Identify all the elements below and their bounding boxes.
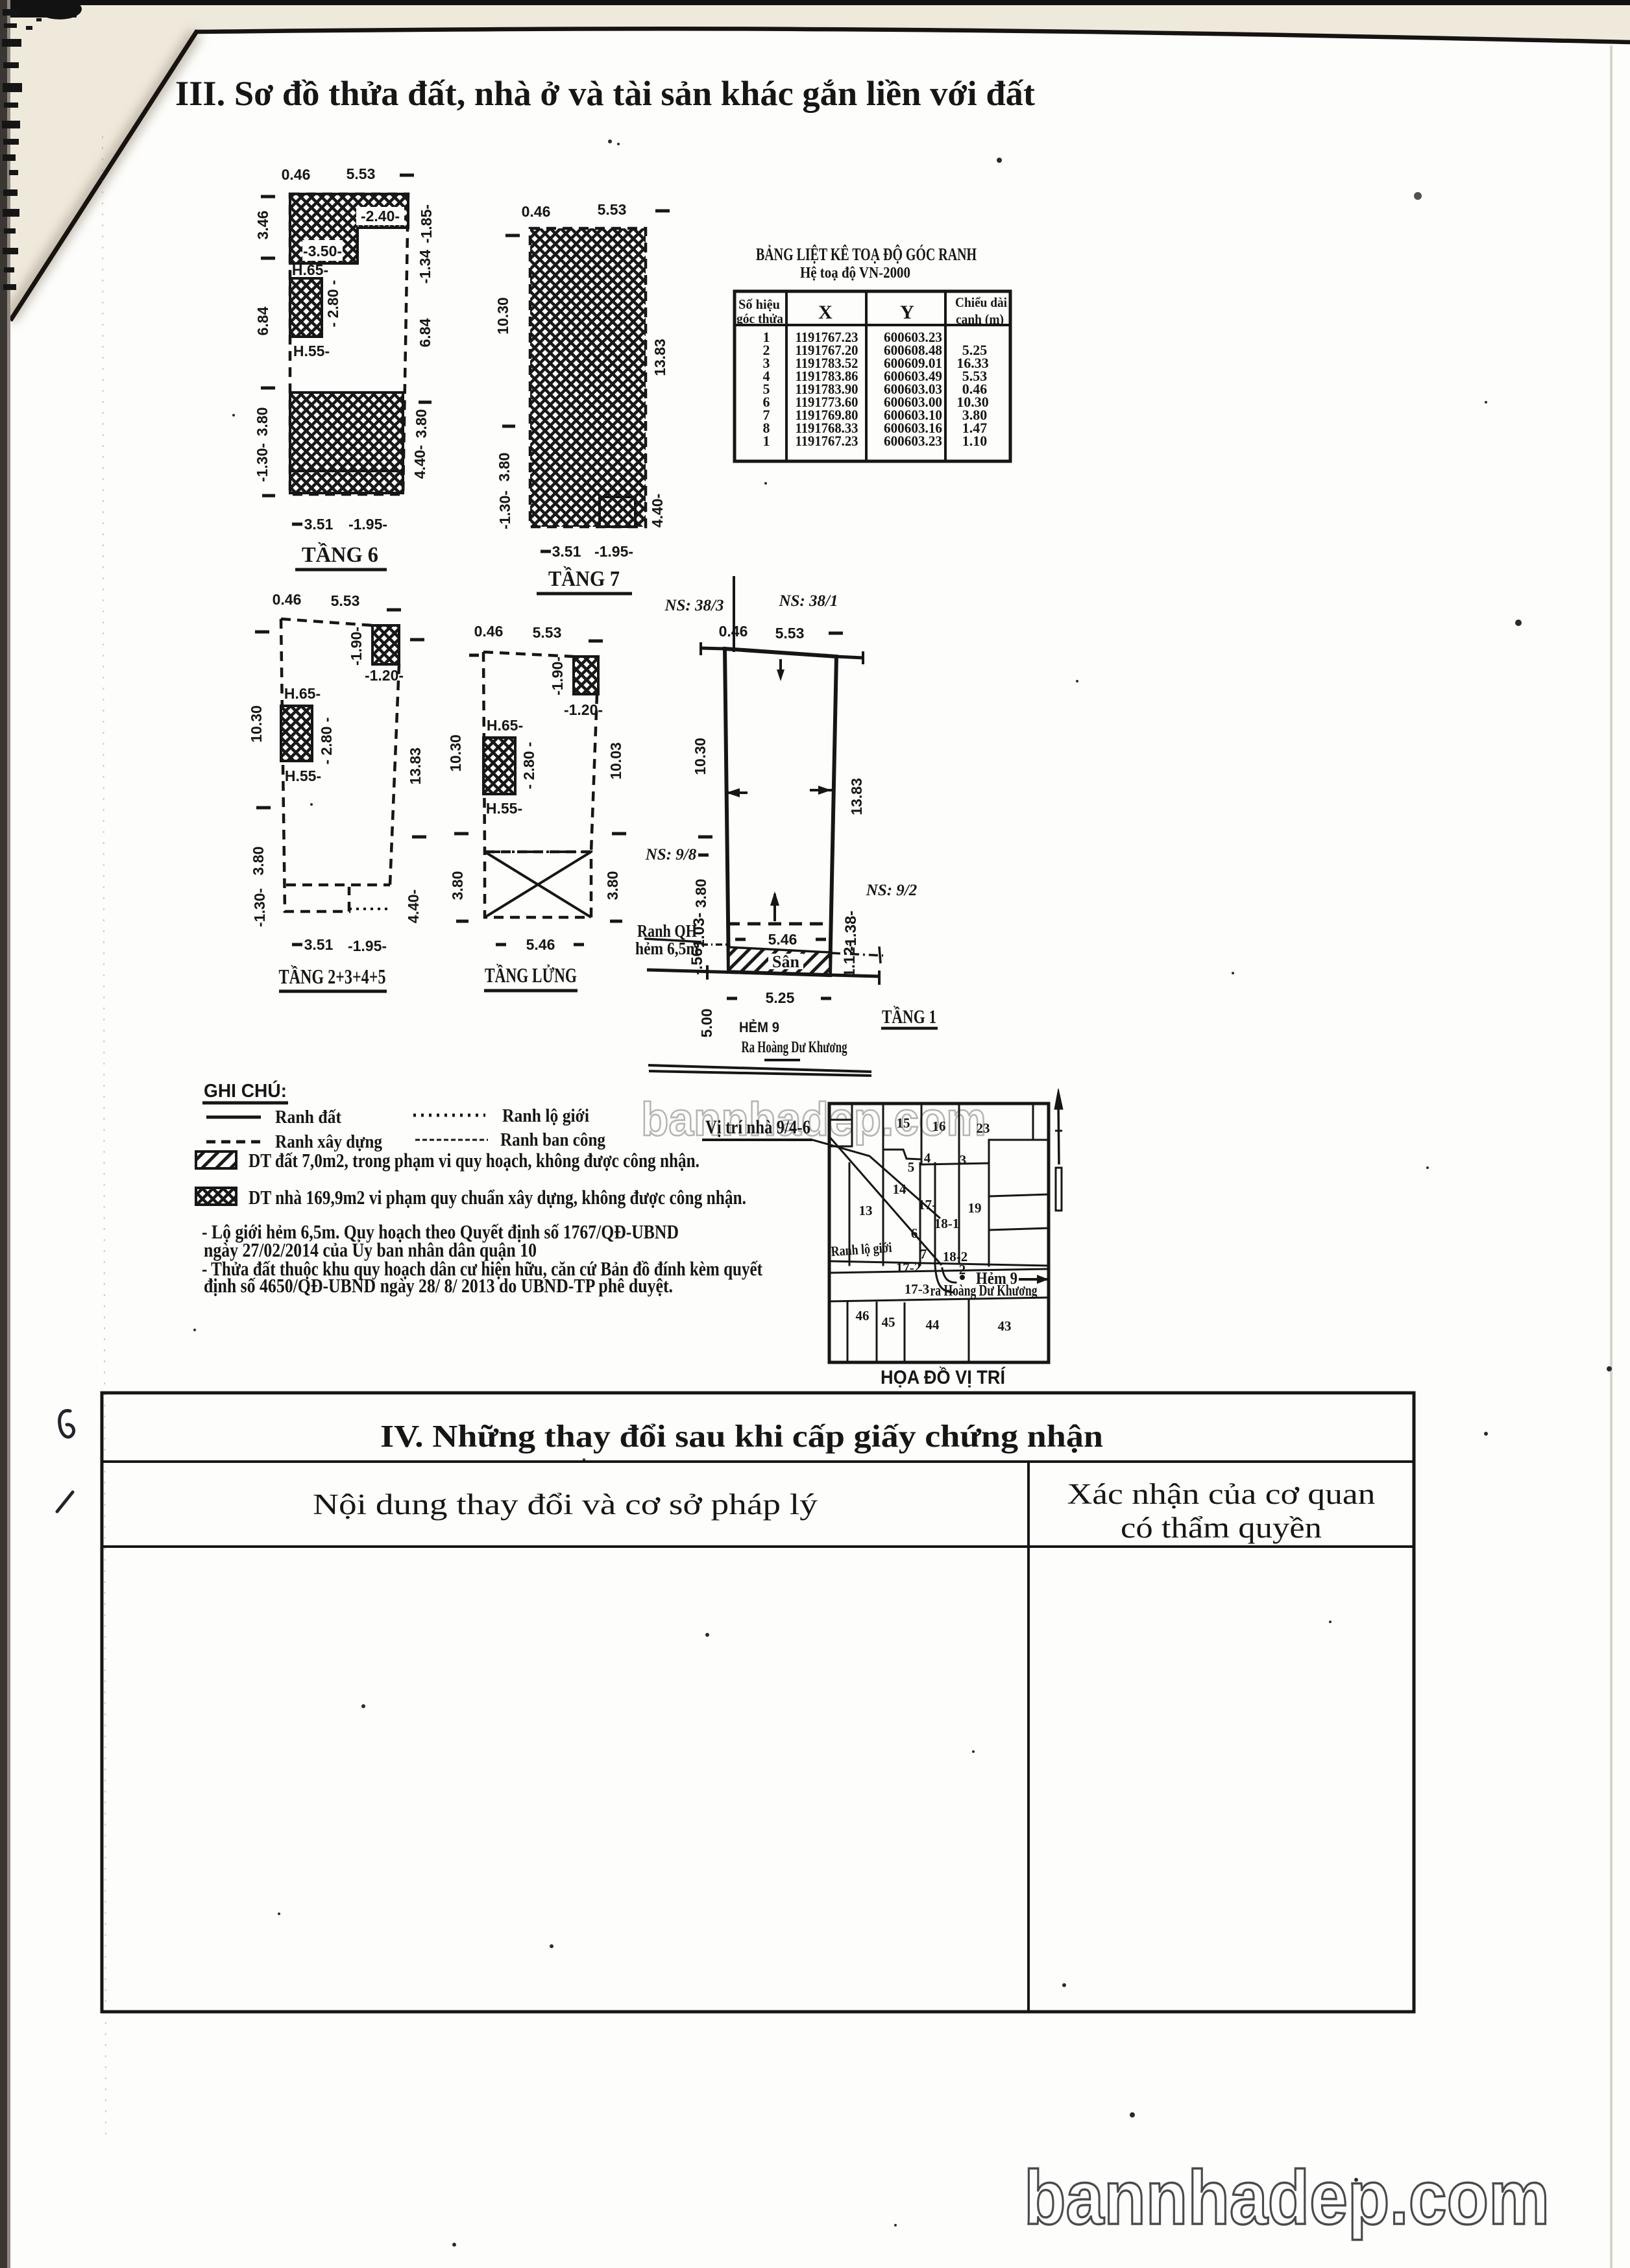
svg-text:3.46: 3.46: [254, 211, 271, 240]
svg-text:-1.30-: -1.30-: [496, 490, 513, 529]
svg-text:1191767.23: 1191767.23: [796, 433, 858, 449]
svg-text:DT đất 7,0m2, trong phạm vi qu: DT đất 7,0m2, trong phạm vi quy hoạch, k…: [249, 1149, 699, 1172]
svg-text:3.80: 3.80: [449, 871, 466, 900]
svg-text:có thẩm quyền: có thẩm quyền: [1121, 1512, 1322, 1544]
svg-text:bannhadep.com: bannhadep.com: [1024, 2155, 1550, 2241]
svg-text:0.46: 0.46: [474, 623, 504, 640]
svg-text:43: 43: [998, 1318, 1012, 1334]
svg-text:Y: Y: [900, 302, 914, 323]
svg-text:5.53: 5.53: [598, 201, 627, 218]
svg-text:Ranh QH: Ranh QH: [637, 921, 697, 941]
svg-text:0.46: 0.46: [522, 203, 551, 220]
svg-text:- 2.80 -: - 2.80 -: [520, 742, 537, 790]
svg-text:-3.50-: -3.50-: [303, 243, 342, 259]
svg-text:1.10: 1.10: [962, 433, 988, 449]
svg-text:3.80: 3.80: [413, 409, 430, 439]
svg-text:6.84: 6.84: [254, 306, 271, 335]
svg-text:5.53: 5.53: [331, 592, 360, 609]
svg-text:-.56-: -.56-: [688, 943, 706, 974]
svg-text:góc thửa: góc thửa: [736, 311, 783, 326]
svg-text:H.55-: H.55-: [486, 800, 522, 817]
svg-text:H.65-: H.65-: [284, 685, 321, 702]
svg-text:Nội dung thay đổi và cơ sở phá: Nội dung thay đổi và cơ sở pháp lý: [313, 1488, 818, 1521]
svg-text:Ra Hoàng Dư Khương: Ra Hoàng Dư Khương: [742, 1039, 847, 1056]
svg-text:10.03: 10.03: [607, 742, 624, 780]
svg-text:NS: 9/8: NS: 9/8: [645, 846, 697, 863]
svg-text:HỌA ĐỒ VỊ TRÍ: HỌA ĐỒ VỊ TRÍ: [881, 1366, 1006, 1388]
svg-text:Hệ toạ độ VN-2000: Hệ toạ độ VN-2000: [800, 265, 910, 282]
svg-text:1.12-: 1.12-: [841, 942, 858, 978]
svg-text:H.55-: H.55-: [285, 767, 321, 784]
svg-text:định số 4650/QĐ-UBND ngày 28/: định số 4650/QĐ-UBND ngày 28/ 8/ 2013 do…: [204, 1274, 673, 1297]
svg-text:46: 46: [856, 1308, 870, 1323]
svg-text:NS: 38/1: NS: 38/1: [779, 592, 838, 610]
svg-text:4.40-: 4.40-: [649, 494, 666, 527]
svg-text:3.51: 3.51: [552, 543, 581, 560]
svg-text:Ranh lộ giới: Ranh lộ giới: [502, 1106, 589, 1126]
svg-text:3.51: 3.51: [304, 516, 334, 533]
svg-text:TẦNG 1: TẦNG 1: [882, 1006, 936, 1028]
svg-text:10.30: 10.30: [692, 738, 709, 775]
svg-text:23: 23: [977, 1120, 990, 1136]
svg-text:-1.34: -1.34: [417, 250, 433, 284]
svg-text:3.80: 3.80: [496, 453, 513, 482]
svg-text:Xác nhận của cơ quan: Xác nhận của cơ quan: [1067, 1478, 1376, 1510]
svg-text:TẦNG 7: TẦNG 7: [548, 566, 620, 591]
svg-text:-1.85-: -1.85-: [418, 204, 435, 243]
svg-text:17-3: 17-3: [905, 1281, 930, 1297]
svg-text:GHI CHÚ:: GHI CHÚ:: [204, 1080, 287, 1102]
svg-text:-1.95-: -1.95-: [348, 937, 387, 954]
svg-text:4: 4: [924, 1150, 931, 1166]
svg-text:14: 14: [893, 1181, 907, 1197]
svg-text:-1.20-: -1.20-: [564, 701, 603, 718]
svg-text:-1.95-: -1.95-: [348, 516, 387, 533]
svg-text:6: 6: [911, 1225, 918, 1241]
svg-text:44: 44: [926, 1317, 940, 1333]
svg-text:1.03-: 1.03-: [690, 913, 708, 948]
svg-text:18-1: 18-1: [934, 1216, 960, 1231]
svg-text:X: X: [818, 302, 833, 323]
svg-text:Chiểu dài: Chiểu dài: [955, 295, 1007, 310]
svg-text:16: 16: [932, 1118, 946, 1134]
svg-text:10.30: 10.30: [447, 734, 464, 772]
svg-text:-2.40-: -2.40-: [361, 208, 400, 224]
svg-text:-1.90-: -1.90-: [549, 657, 566, 695]
svg-text:IV. Những thay đổi sau khi cấp: IV. Những thay đổi sau khi cấp giấy chứn…: [380, 1418, 1103, 1454]
svg-text:4.40-: 4.40-: [411, 445, 428, 479]
svg-text:5: 5: [908, 1159, 915, 1175]
svg-text:-1.90-: -1.90-: [348, 627, 365, 666]
svg-text:-1.95-: -1.95-: [594, 543, 633, 560]
svg-text:5.25: 5.25: [766, 989, 795, 1006]
svg-text:10.30: 10.30: [248, 705, 265, 743]
svg-text:Vị trí nhà 9/4-6: Vị trí nhà 9/4-6: [705, 1116, 810, 1138]
svg-text:5.46: 5.46: [768, 931, 797, 948]
svg-text:15: 15: [897, 1115, 910, 1131]
svg-text:H.55-: H.55-: [293, 343, 330, 359]
svg-text:3.80: 3.80: [254, 407, 271, 437]
svg-text:3.80: 3.80: [692, 879, 709, 908]
svg-text:TẦNG LỬNG: TẦNG LỬNG: [485, 963, 577, 987]
svg-text:3.80: 3.80: [250, 847, 267, 876]
svg-text:13.83: 13.83: [407, 747, 424, 785]
svg-text:2: 2: [959, 1262, 966, 1277]
svg-text:TẦNG 6: TẦNG 6: [302, 542, 378, 567]
svg-text:17-2: 17-2: [896, 1260, 921, 1275]
svg-text:600603.23: 600603.23: [884, 433, 942, 449]
svg-text:Số hiệu: Số hiệu: [738, 296, 780, 312]
svg-text:Ranh ban công: Ranh ban công: [500, 1130, 605, 1150]
svg-text:3: 3: [960, 1152, 967, 1168]
svg-text:- 2.80 -: - 2.80 -: [324, 280, 341, 328]
svg-text:NS: 38/3: NS: 38/3: [664, 597, 724, 614]
svg-text:19: 19: [968, 1200, 982, 1216]
svg-text:-1.20-: -1.20-: [365, 667, 404, 684]
svg-text:3.51: 3.51: [304, 936, 334, 953]
svg-text:0.46: 0.46: [719, 623, 748, 640]
svg-text:0.46: 0.46: [282, 166, 311, 183]
svg-text:TẦNG 2+3+4+5: TẦNG 2+3+4+5: [279, 965, 386, 988]
svg-text:Ranh đất: Ranh đất: [275, 1107, 342, 1128]
svg-text:ra Hoàng Dư Khương: ra Hoàng Dư Khương: [931, 1283, 1038, 1299]
svg-text:BẢNG LIỆT KÊ TOẠ ĐỘ GÓC RANH: BẢNG LIỆT KÊ TOẠ ĐỘ GÓC RANH: [756, 245, 977, 264]
svg-text:III. Sơ đồ thửa đất, nhà ở và: III. Sơ đồ thửa đất, nhà ở và tài sản kh…: [175, 74, 1035, 113]
svg-text:-1.30-: -1.30-: [254, 443, 271, 482]
svg-text:0.46: 0.46: [273, 591, 302, 608]
svg-text:cạnh (m): cạnh (m): [956, 311, 1004, 327]
svg-text:13.83: 13.83: [651, 339, 668, 376]
svg-text:-1.30-: -1.30-: [251, 888, 268, 927]
svg-text:5.53: 5.53: [347, 165, 376, 182]
svg-text:Sân: Sân: [772, 952, 799, 971]
svg-text:5.00: 5.00: [698, 1009, 715, 1038]
svg-text:10.30: 10.30: [494, 297, 511, 335]
svg-text:45: 45: [882, 1314, 895, 1330]
svg-text:3.80: 3.80: [604, 871, 621, 900]
svg-text:6.84: 6.84: [417, 318, 433, 347]
svg-text:7: 7: [920, 1246, 927, 1262]
svg-text:5.46: 5.46: [526, 936, 555, 953]
svg-text:4.40-: 4.40-: [405, 889, 422, 923]
svg-text:- 2.80 -: - 2.80 -: [318, 718, 335, 765]
svg-text:HẺM 9: HẺM 9: [739, 1019, 779, 1035]
svg-text:DT nhà 169,9m2 vi phạm quy chu: DT nhà 169,9m2 vi phạm quy chuẩn xây dựn…: [249, 1186, 746, 1209]
svg-text:13.83: 13.83: [848, 778, 865, 815]
svg-text:5.53: 5.53: [775, 625, 805, 642]
svg-text:H.65-: H.65-: [292, 261, 328, 278]
svg-text:H.65-: H.65-: [487, 717, 523, 734]
svg-text:17-: 17-: [918, 1197, 936, 1212]
svg-text:1: 1: [763, 433, 770, 449]
svg-text:13: 13: [859, 1203, 873, 1218]
svg-text:5.53: 5.53: [533, 624, 562, 641]
svg-text:NS: 9/2: NS: 9/2: [866, 882, 917, 899]
